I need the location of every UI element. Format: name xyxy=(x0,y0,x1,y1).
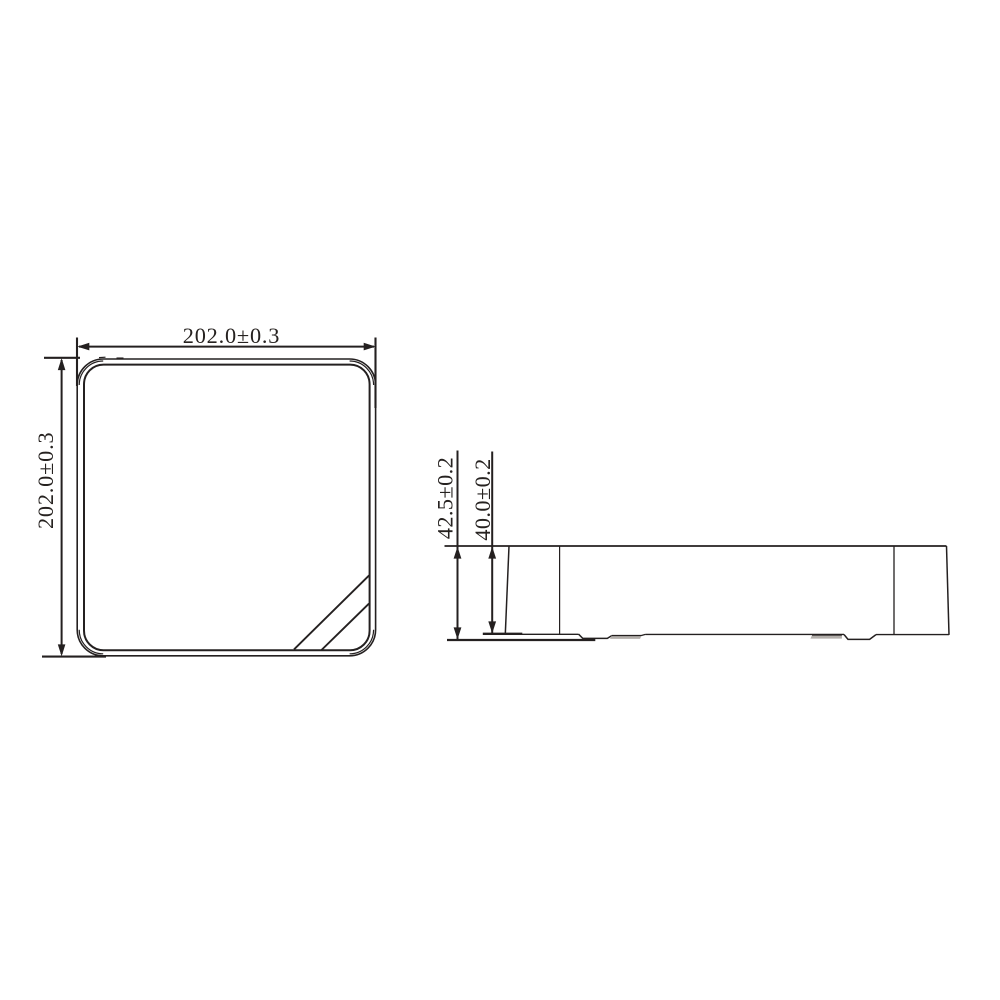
svg-text:42.5±0.2: 42.5±0.2 xyxy=(433,457,458,539)
svg-text:40.0±0.2: 40.0±0.2 xyxy=(470,458,495,540)
svg-text:202.0±0.3: 202.0±0.3 xyxy=(183,323,280,348)
svg-text:202.0±0.3: 202.0±0.3 xyxy=(33,432,58,529)
